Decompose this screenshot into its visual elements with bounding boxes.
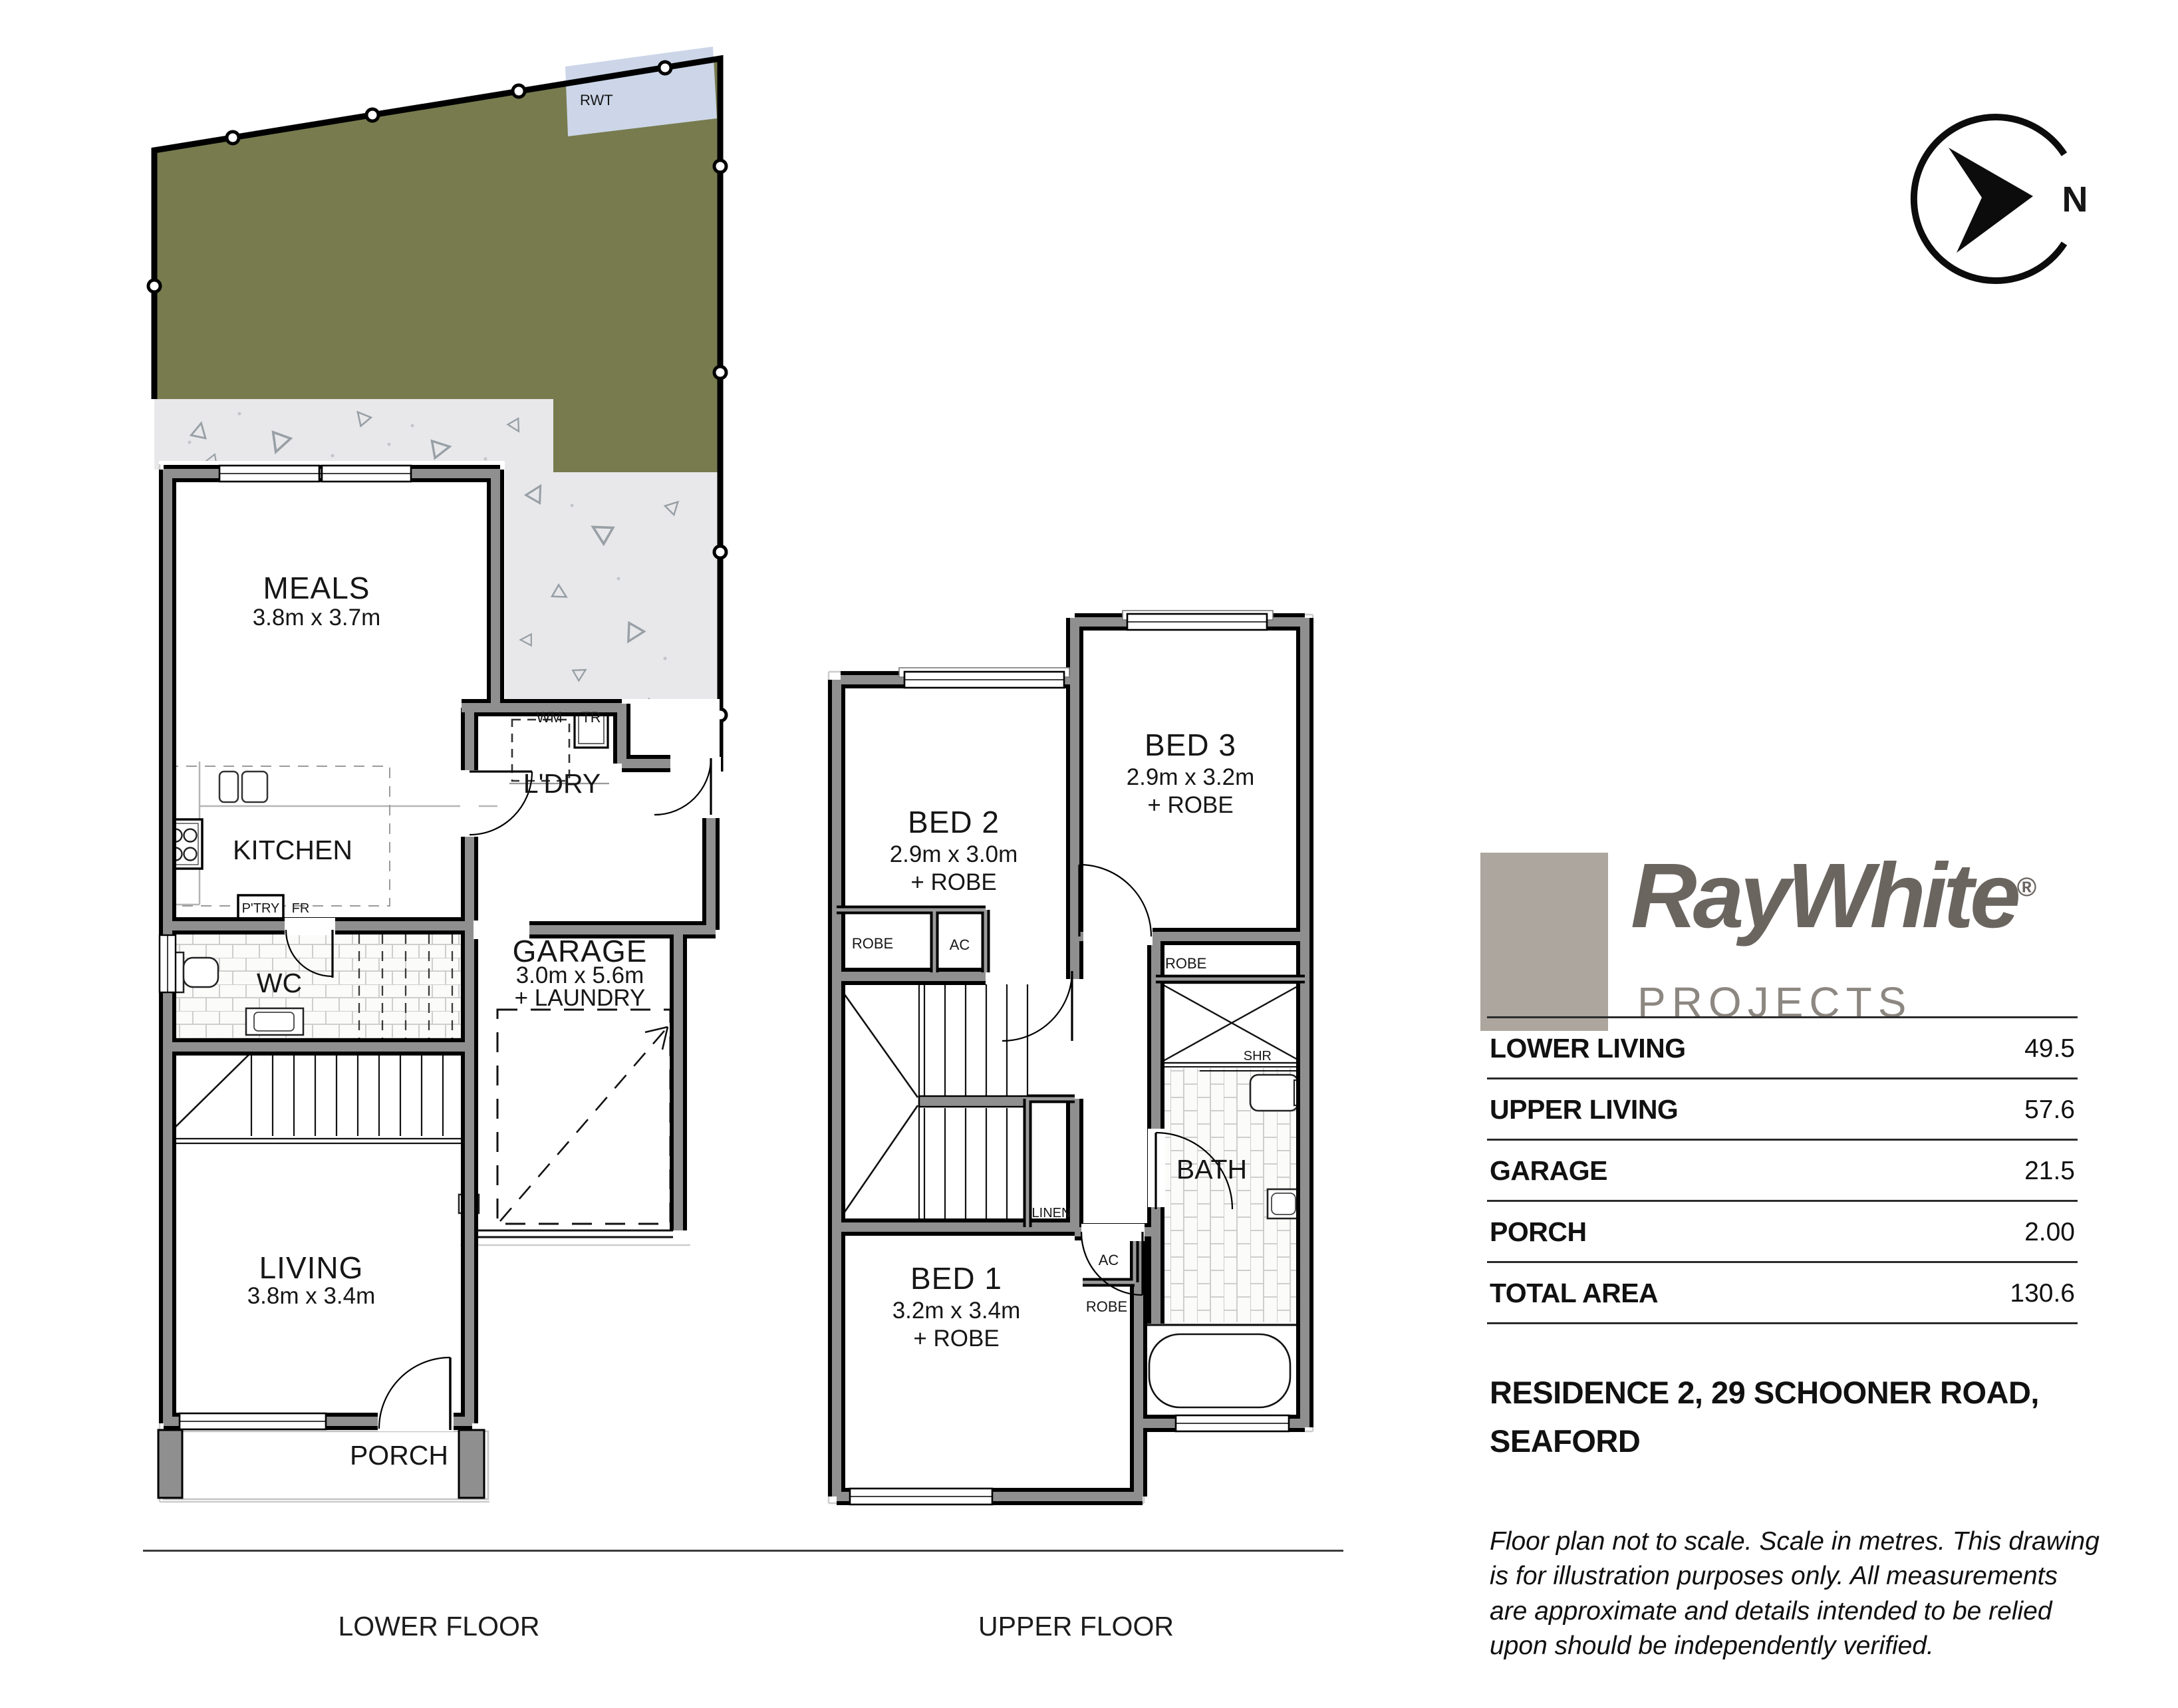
bed1-extra: + ROBE xyxy=(913,1326,999,1352)
bed3-extra: + ROBE xyxy=(1147,792,1233,818)
area-row-label: PORCH xyxy=(1490,1216,1587,1248)
bath-label: BATH xyxy=(1176,1154,1247,1185)
area-table: LOWER LIVING 49.5 UPPER LIVING 57.6 GARA… xyxy=(1487,1016,2078,1324)
address-line1: RESIDENCE 2, 29 SCHOONER ROAD, xyxy=(1490,1369,2141,1417)
table-row: TOTAL AREA 130.6 xyxy=(1487,1261,2078,1324)
area-row-label: GARAGE xyxy=(1490,1155,1607,1187)
wm-label: WM xyxy=(536,709,562,726)
area-row-value: 49.5 xyxy=(2024,1034,2075,1064)
floorplan-page: RWT xyxy=(0,0,2178,1708)
lower-floor-plan: RWT xyxy=(148,47,726,1504)
meals-label: MEALS xyxy=(263,571,370,605)
bed2-extra: + ROBE xyxy=(910,869,996,895)
registered-mark: ® xyxy=(2017,873,2036,902)
lower-floor-label: LOWER FLOOR xyxy=(339,1611,540,1642)
north-compass-icon: N xyxy=(1914,117,2088,281)
raywhite-logo-wordmark: RayWhite® xyxy=(1631,843,2036,949)
table-row: GARAGE 21.5 xyxy=(1487,1139,2078,1200)
floor-divider-line xyxy=(143,1550,1343,1552)
rwt-label: RWT xyxy=(580,92,613,108)
table-row: UPPER LIVING 57.6 xyxy=(1487,1077,2078,1139)
area-row-label: UPPER LIVING xyxy=(1490,1094,1678,1125)
porch-label: PORCH xyxy=(350,1440,448,1471)
meals-dims: 3.8m x 3.7m xyxy=(253,605,381,631)
area-row-value: 2.00 xyxy=(2024,1218,2075,1247)
ac-label-1: AC xyxy=(950,936,970,953)
table-row: LOWER LIVING 49.5 xyxy=(1487,1016,2078,1077)
compass-north-label: N xyxy=(2062,180,2088,219)
bed2-dims: 2.9m x 3.0m xyxy=(890,841,1018,867)
pantry-label: P'TRY xyxy=(242,901,280,916)
property-address: RESIDENCE 2, 29 SCHOONER ROAD, SEAFORD xyxy=(1490,1369,2141,1466)
wc-label: WC xyxy=(257,968,302,998)
living-dims: 3.8m x 3.4m xyxy=(247,1283,376,1309)
table-row: PORCH 2.00 xyxy=(1487,1200,2078,1261)
disclaimer-text: Floor plan not to scale. Scale in metres… xyxy=(1490,1524,2102,1663)
kitchen-label: KITCHEN xyxy=(233,835,352,865)
raywhite-word1: Ray xyxy=(1631,845,1787,947)
robe-label-bed3: ROBE xyxy=(1165,955,1206,972)
tr-label: TR xyxy=(581,709,601,726)
upper-floor-label: UPPER FLOOR xyxy=(978,1611,1174,1642)
robe-label-bed1: ROBE xyxy=(1086,1298,1127,1315)
area-row-value: 57.6 xyxy=(2024,1095,2075,1125)
living-label: LIVING xyxy=(259,1250,364,1285)
address-line2: SEAFORD xyxy=(1490,1417,2141,1466)
shr-label: SHR xyxy=(1244,1049,1272,1064)
fridge-label: FR xyxy=(292,901,310,916)
sink-icon xyxy=(219,772,238,802)
area-row-label: LOWER LIVING xyxy=(1490,1033,1686,1064)
wc-vanity-icon xyxy=(246,1008,303,1035)
bed2-label: BED 2 xyxy=(908,805,1000,839)
linen-label: LINEN xyxy=(1032,1206,1071,1220)
bathtub-icon xyxy=(1135,1325,1302,1417)
garage-extra: + LAUNDRY xyxy=(515,985,646,1011)
shower-icon xyxy=(1160,983,1305,1071)
ldry-label: L'DRY xyxy=(523,768,601,799)
upper-floor-plan: BED 2 2.9m x 3.0m + ROBE BED 3 2.9m x 3.… xyxy=(829,611,1313,1504)
sink-icon xyxy=(242,772,267,802)
area-row-value: 21.5 xyxy=(2024,1157,2075,1186)
bed1-label: BED 1 xyxy=(910,1261,1002,1296)
raywhite-logo-square xyxy=(1480,853,1608,1031)
raywhite-word2: White xyxy=(1787,845,2017,947)
bed3-label: BED 3 xyxy=(1145,728,1236,762)
ac-label-2: AC xyxy=(1099,1252,1119,1268)
bed1-dims: 3.2m x 3.4m xyxy=(892,1298,1021,1324)
robe-label-bed2: ROBE xyxy=(852,935,893,952)
bath-toilet-icon xyxy=(1268,1189,1301,1218)
area-row-value: 130.6 xyxy=(2010,1279,2075,1308)
area-row-label: TOTAL AREA xyxy=(1490,1278,1658,1309)
bed3-dims: 2.9m x 3.2m xyxy=(1127,764,1255,790)
